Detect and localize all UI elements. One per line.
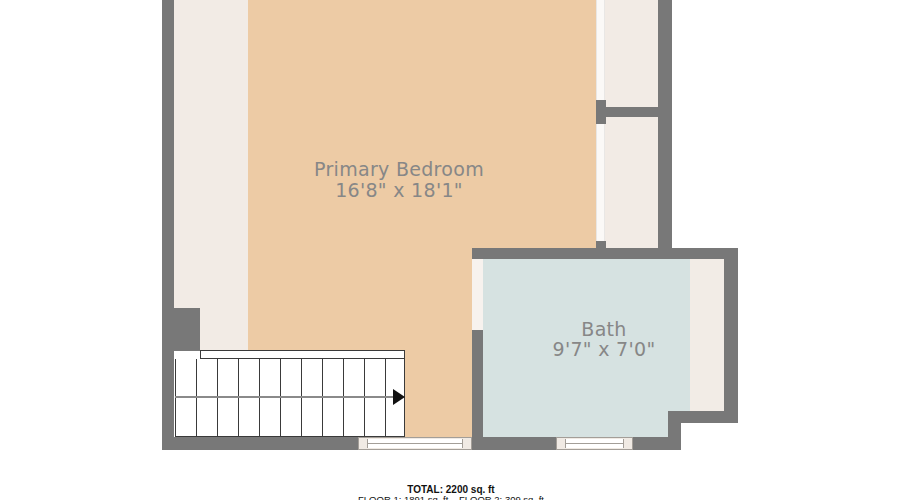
room-dimensions: 16'8" x 18'1" [249, 180, 549, 201]
window-glass [367, 439, 463, 448]
stair-center-rail [175, 396, 393, 398]
closet-sliding-door-upper [596, 0, 605, 100]
wall-bath-top [472, 248, 738, 259]
window-glass [565, 439, 624, 448]
wall-left [162, 0, 174, 450]
closet-sliding-door-lower [596, 124, 605, 241]
floorplan-canvas: Primary Bedroom 16'8" x 18'1" Bath 9'7" … [0, 0, 900, 500]
stair-treads [175, 359, 405, 437]
floor1-area-text: FLOOR 1: 1891 sq. ft [358, 494, 448, 500]
room-name: Primary Bedroom [249, 159, 549, 180]
wall-divider-stub [596, 100, 606, 124]
floor2-area-text: FLOOR 2: 309 sq. ft [459, 494, 544, 500]
primary-bedroom-label: Primary Bedroom 16'8" x 18'1" [249, 159, 549, 201]
floor-areas-text: FLOOR 1: 1891 sq. ft FLOOR 2: 309 sq. ft [299, 494, 603, 500]
stair-landing [200, 350, 405, 359]
room-name: Bath [479, 319, 729, 339]
room-dimensions: 9'7" x 7'0" [479, 339, 729, 359]
bedroom-closet-right-floor [605, 0, 658, 248]
bedroom-closet-left-floor [174, 0, 248, 350]
stair-direction-arrow-icon [393, 389, 405, 405]
window-bedroom [358, 437, 472, 450]
primary-bedroom-floor [248, 0, 597, 249]
wall-right-upper [658, 0, 672, 248]
bath-label: Bath 9'7" x 7'0" [479, 319, 729, 359]
window-bath [556, 437, 633, 450]
wall-stair-corner-block [162, 308, 200, 351]
wall-closet-divider [606, 107, 658, 117]
